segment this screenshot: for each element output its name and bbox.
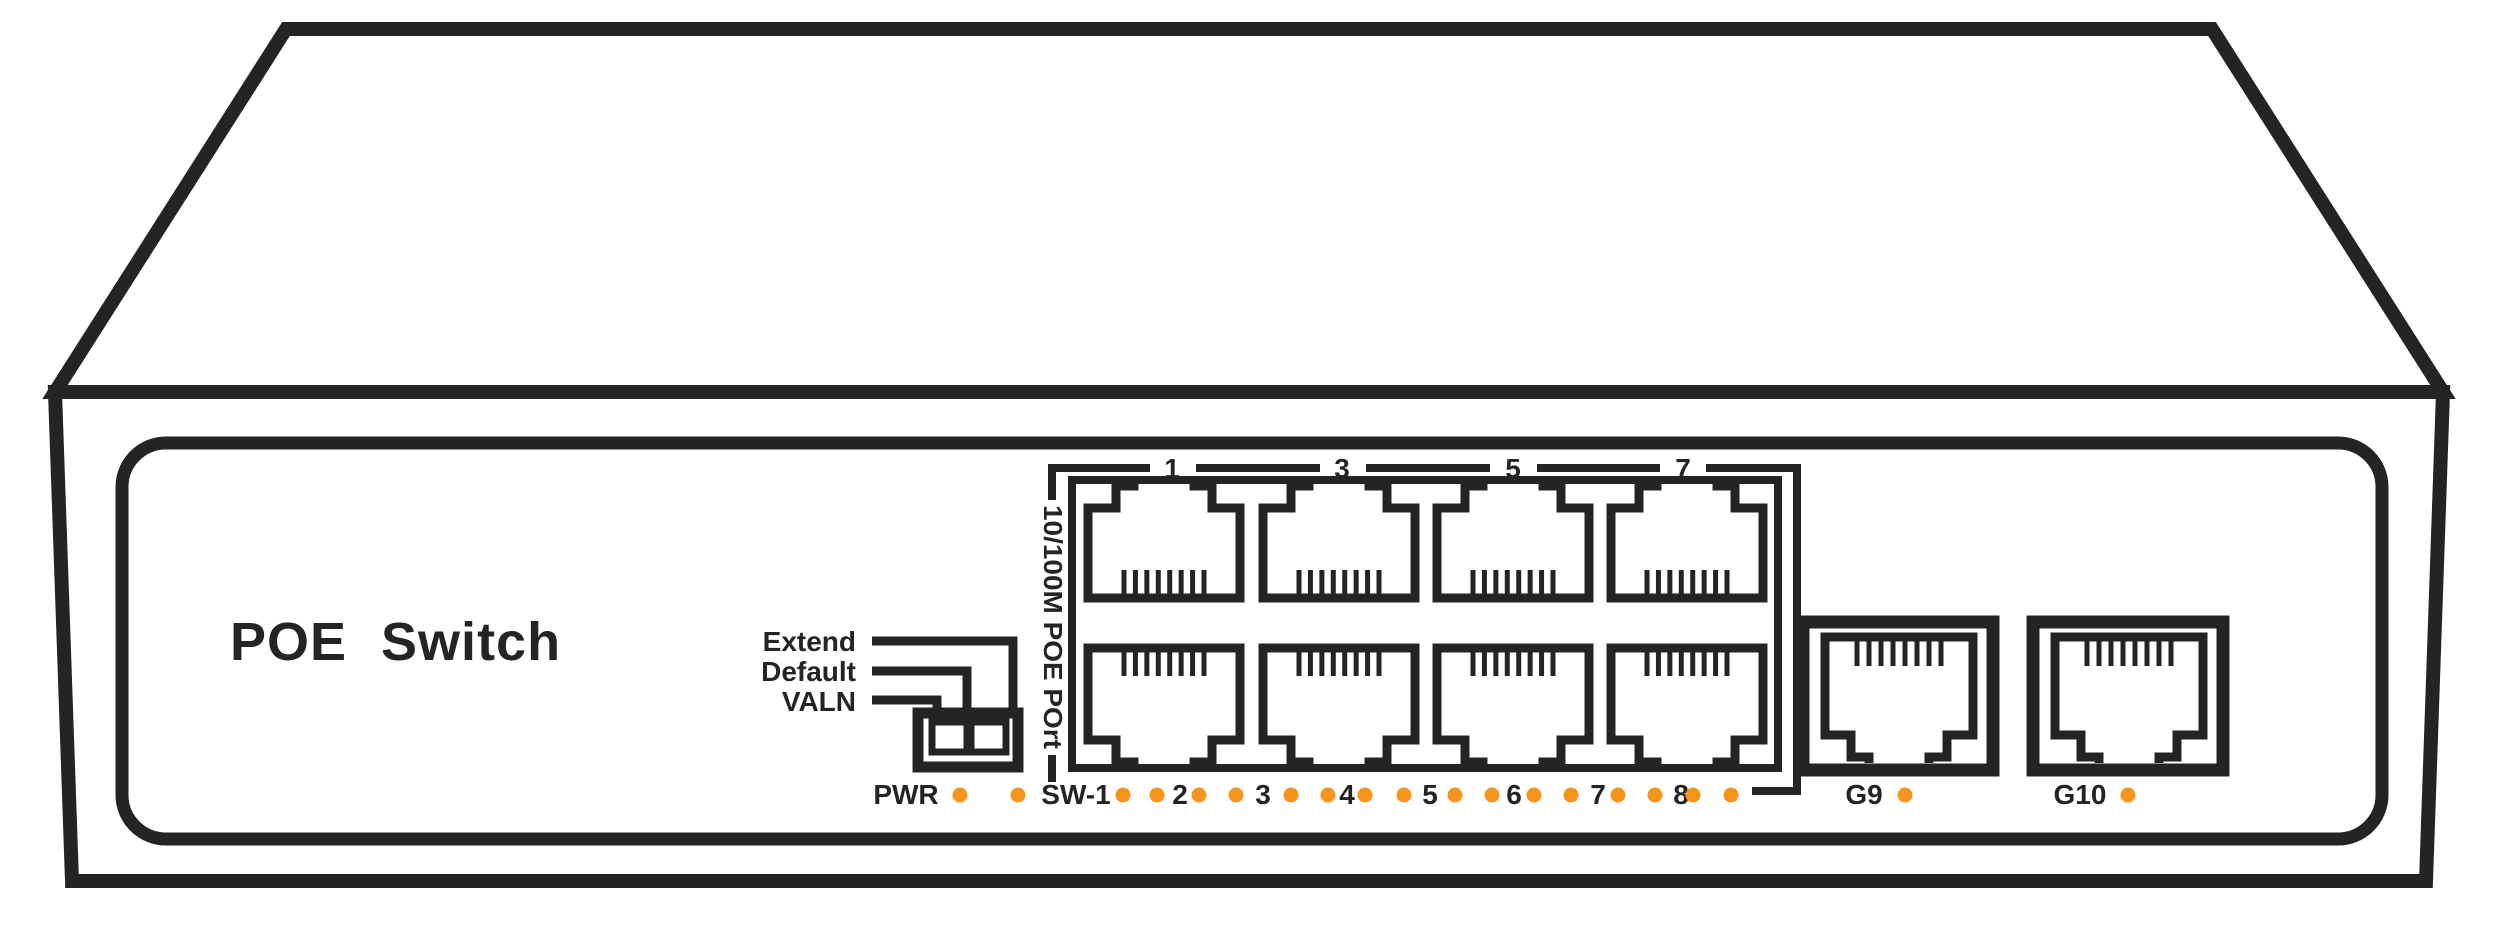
dip-label-valn: VALN: [782, 686, 856, 717]
device-title: POE Switch: [230, 612, 561, 672]
led-dot: [1011, 788, 1026, 803]
uplink-port-label-G9: G9: [1845, 779, 1882, 810]
led-dot: [953, 788, 968, 803]
uplink-port-frame: [1803, 622, 1993, 770]
led-dot: [1358, 788, 1373, 803]
led-dot: [1648, 788, 1663, 803]
dip-switch-position-1: [932, 722, 967, 752]
led-label-7: 7: [1590, 779, 1606, 810]
led-label-3: 3: [1255, 779, 1271, 810]
led-dot: [1397, 788, 1412, 803]
led-label-6: 6: [1506, 779, 1522, 810]
case-top-face: [55, 29, 2443, 392]
led-dot: [1611, 788, 1626, 803]
led-label-2: 2: [1172, 779, 1188, 810]
poe-switch-diagram: POE Switch Extend Default VALN 10/100M P…: [0, 0, 2495, 928]
led-dot: [1686, 788, 1701, 803]
led-label-4: 4: [1339, 779, 1355, 810]
led-label-PWR: PWR: [873, 779, 938, 810]
led-dot: [1485, 788, 1500, 803]
poe-block-vertical-label: 10/100M POE POrt: [1038, 505, 1068, 749]
uplink-port-frame: [2033, 622, 2223, 770]
dip-switch-position-2: [971, 722, 1006, 752]
led-dot: [1229, 788, 1244, 803]
poe-switch-illustration: POE Switch Extend Default VALN 10/100M P…: [0, 0, 2495, 928]
dip-label-extend: Extend: [763, 626, 856, 657]
led-dot: [2121, 788, 2136, 803]
led-label-SW-1: SW-1: [1041, 779, 1110, 810]
led-dot: [1150, 788, 1165, 803]
led-dot: [1724, 788, 1739, 803]
led-dot: [1284, 788, 1299, 803]
dip-label-default: Default: [761, 656, 856, 687]
led-dot: [1448, 788, 1463, 803]
led-dot: [1321, 788, 1336, 803]
led-dot: [1116, 788, 1131, 803]
led-label-5: 5: [1422, 779, 1438, 810]
uplink-port-label-G10: G10: [2054, 779, 2107, 810]
led-dot: [1898, 788, 1913, 803]
led-dot: [1564, 788, 1579, 803]
led-dot: [1527, 788, 1542, 803]
led-dot: [1192, 788, 1207, 803]
